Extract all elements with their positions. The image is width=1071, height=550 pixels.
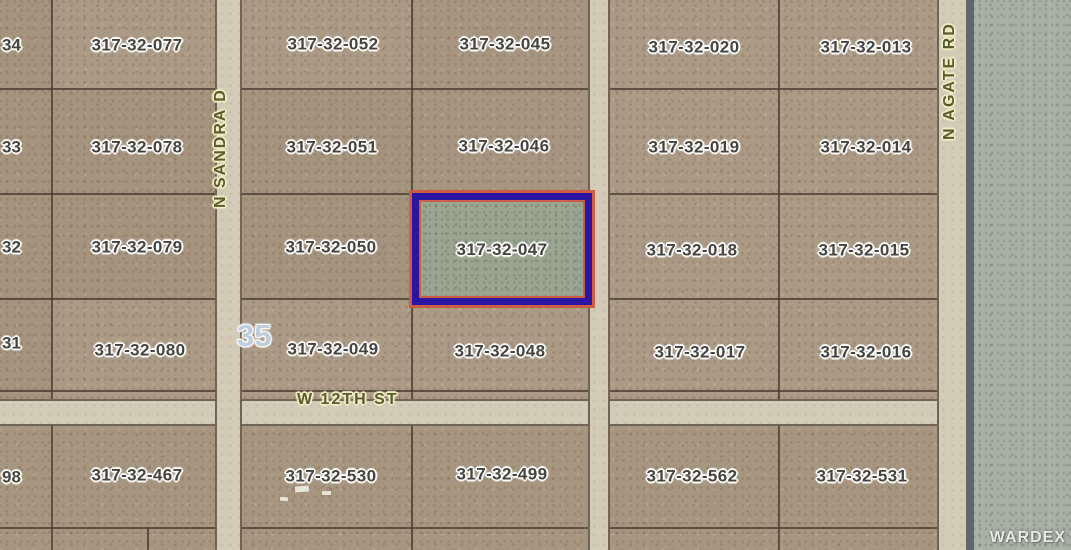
- terrain-tint: [0, 0, 52, 426]
- terrain-open-land: [974, 0, 1071, 550]
- terrain-tint: [411, 0, 588, 193]
- parcel-label: 317-32-018: [647, 242, 738, 259]
- grid-line: [147, 527, 149, 550]
- section-number-label: 35: [237, 320, 271, 351]
- parcel-label: 317-32-050: [286, 239, 377, 256]
- parcel-label: 317-32-013: [821, 39, 912, 56]
- parcel-label-partial: 98: [2, 469, 21, 486]
- parcel-label-partial: 31: [2, 335, 21, 352]
- grid-line: [778, 0, 780, 550]
- highlighted-parcel-317-32-047[interactable]: 317-32-047: [409, 190, 595, 308]
- road-w-12th-st: [0, 399, 970, 426]
- parcel-label: 317-32-499: [457, 466, 548, 483]
- parcel-label: 317-32-562: [647, 468, 738, 485]
- parcel-label: 317-32-530: [286, 468, 377, 485]
- parcel-label: 317-32-014: [821, 139, 912, 156]
- grid-line: [51, 0, 53, 550]
- parcel-label: 317-32-531: [817, 468, 908, 485]
- parcel-label: 317-32-048: [455, 343, 546, 360]
- parcel-label: 317-32-016: [821, 344, 912, 361]
- grid-line: [0, 390, 941, 392]
- parcel-label-partial: 32: [2, 239, 21, 256]
- parcel-label: 317-32-080: [95, 342, 186, 359]
- parcel-map-canvas[interactable]: 317-32-077 317-32-052 317-32-045 317-32-…: [0, 0, 1071, 550]
- street-label-w-12th-st: W 12TH ST: [297, 391, 399, 409]
- parcel-label: 317-32-052: [288, 36, 379, 53]
- parcel-label: 317-32-051: [287, 139, 378, 156]
- terrain-boundary-line: [967, 0, 974, 550]
- parcel-label: 317-32-019: [649, 139, 740, 156]
- wardex-watermark: WARDEX: [990, 529, 1066, 547]
- grid-line: [0, 527, 941, 529]
- building: [295, 486, 309, 493]
- parcel-label: 317-32-467: [92, 467, 183, 484]
- building: [322, 491, 331, 495]
- parcel-label: 317-32-049: [288, 341, 379, 358]
- grid-line: [0, 88, 941, 90]
- terrain-tint: [0, 426, 968, 550]
- highlight-fill: 317-32-047: [419, 200, 585, 298]
- parcel-label: 317-32-020: [649, 39, 740, 56]
- parcel-label: 317-32-079: [92, 239, 183, 256]
- parcel-label: 317-32-017: [655, 344, 746, 361]
- parcel-label: 317-32-078: [92, 139, 183, 156]
- building: [280, 497, 288, 502]
- highlight-border: 317-32-047: [412, 193, 592, 305]
- parcel-label: 317-32-077: [92, 37, 183, 54]
- parcel-label: 317-32-046: [459, 138, 550, 155]
- street-label-n-sandra-dr: N SANDRA D: [212, 0, 230, 208]
- parcel-label-partial: 34: [2, 37, 21, 54]
- street-label-n-agate-rd: N AGATE RD: [941, 0, 959, 140]
- highlighted-parcel-label: 317-32-047: [457, 241, 548, 258]
- parcel-label-partial: 33: [2, 139, 21, 156]
- parcel-label: 317-32-045: [460, 36, 551, 53]
- parcel-label: 317-32-015: [819, 242, 910, 259]
